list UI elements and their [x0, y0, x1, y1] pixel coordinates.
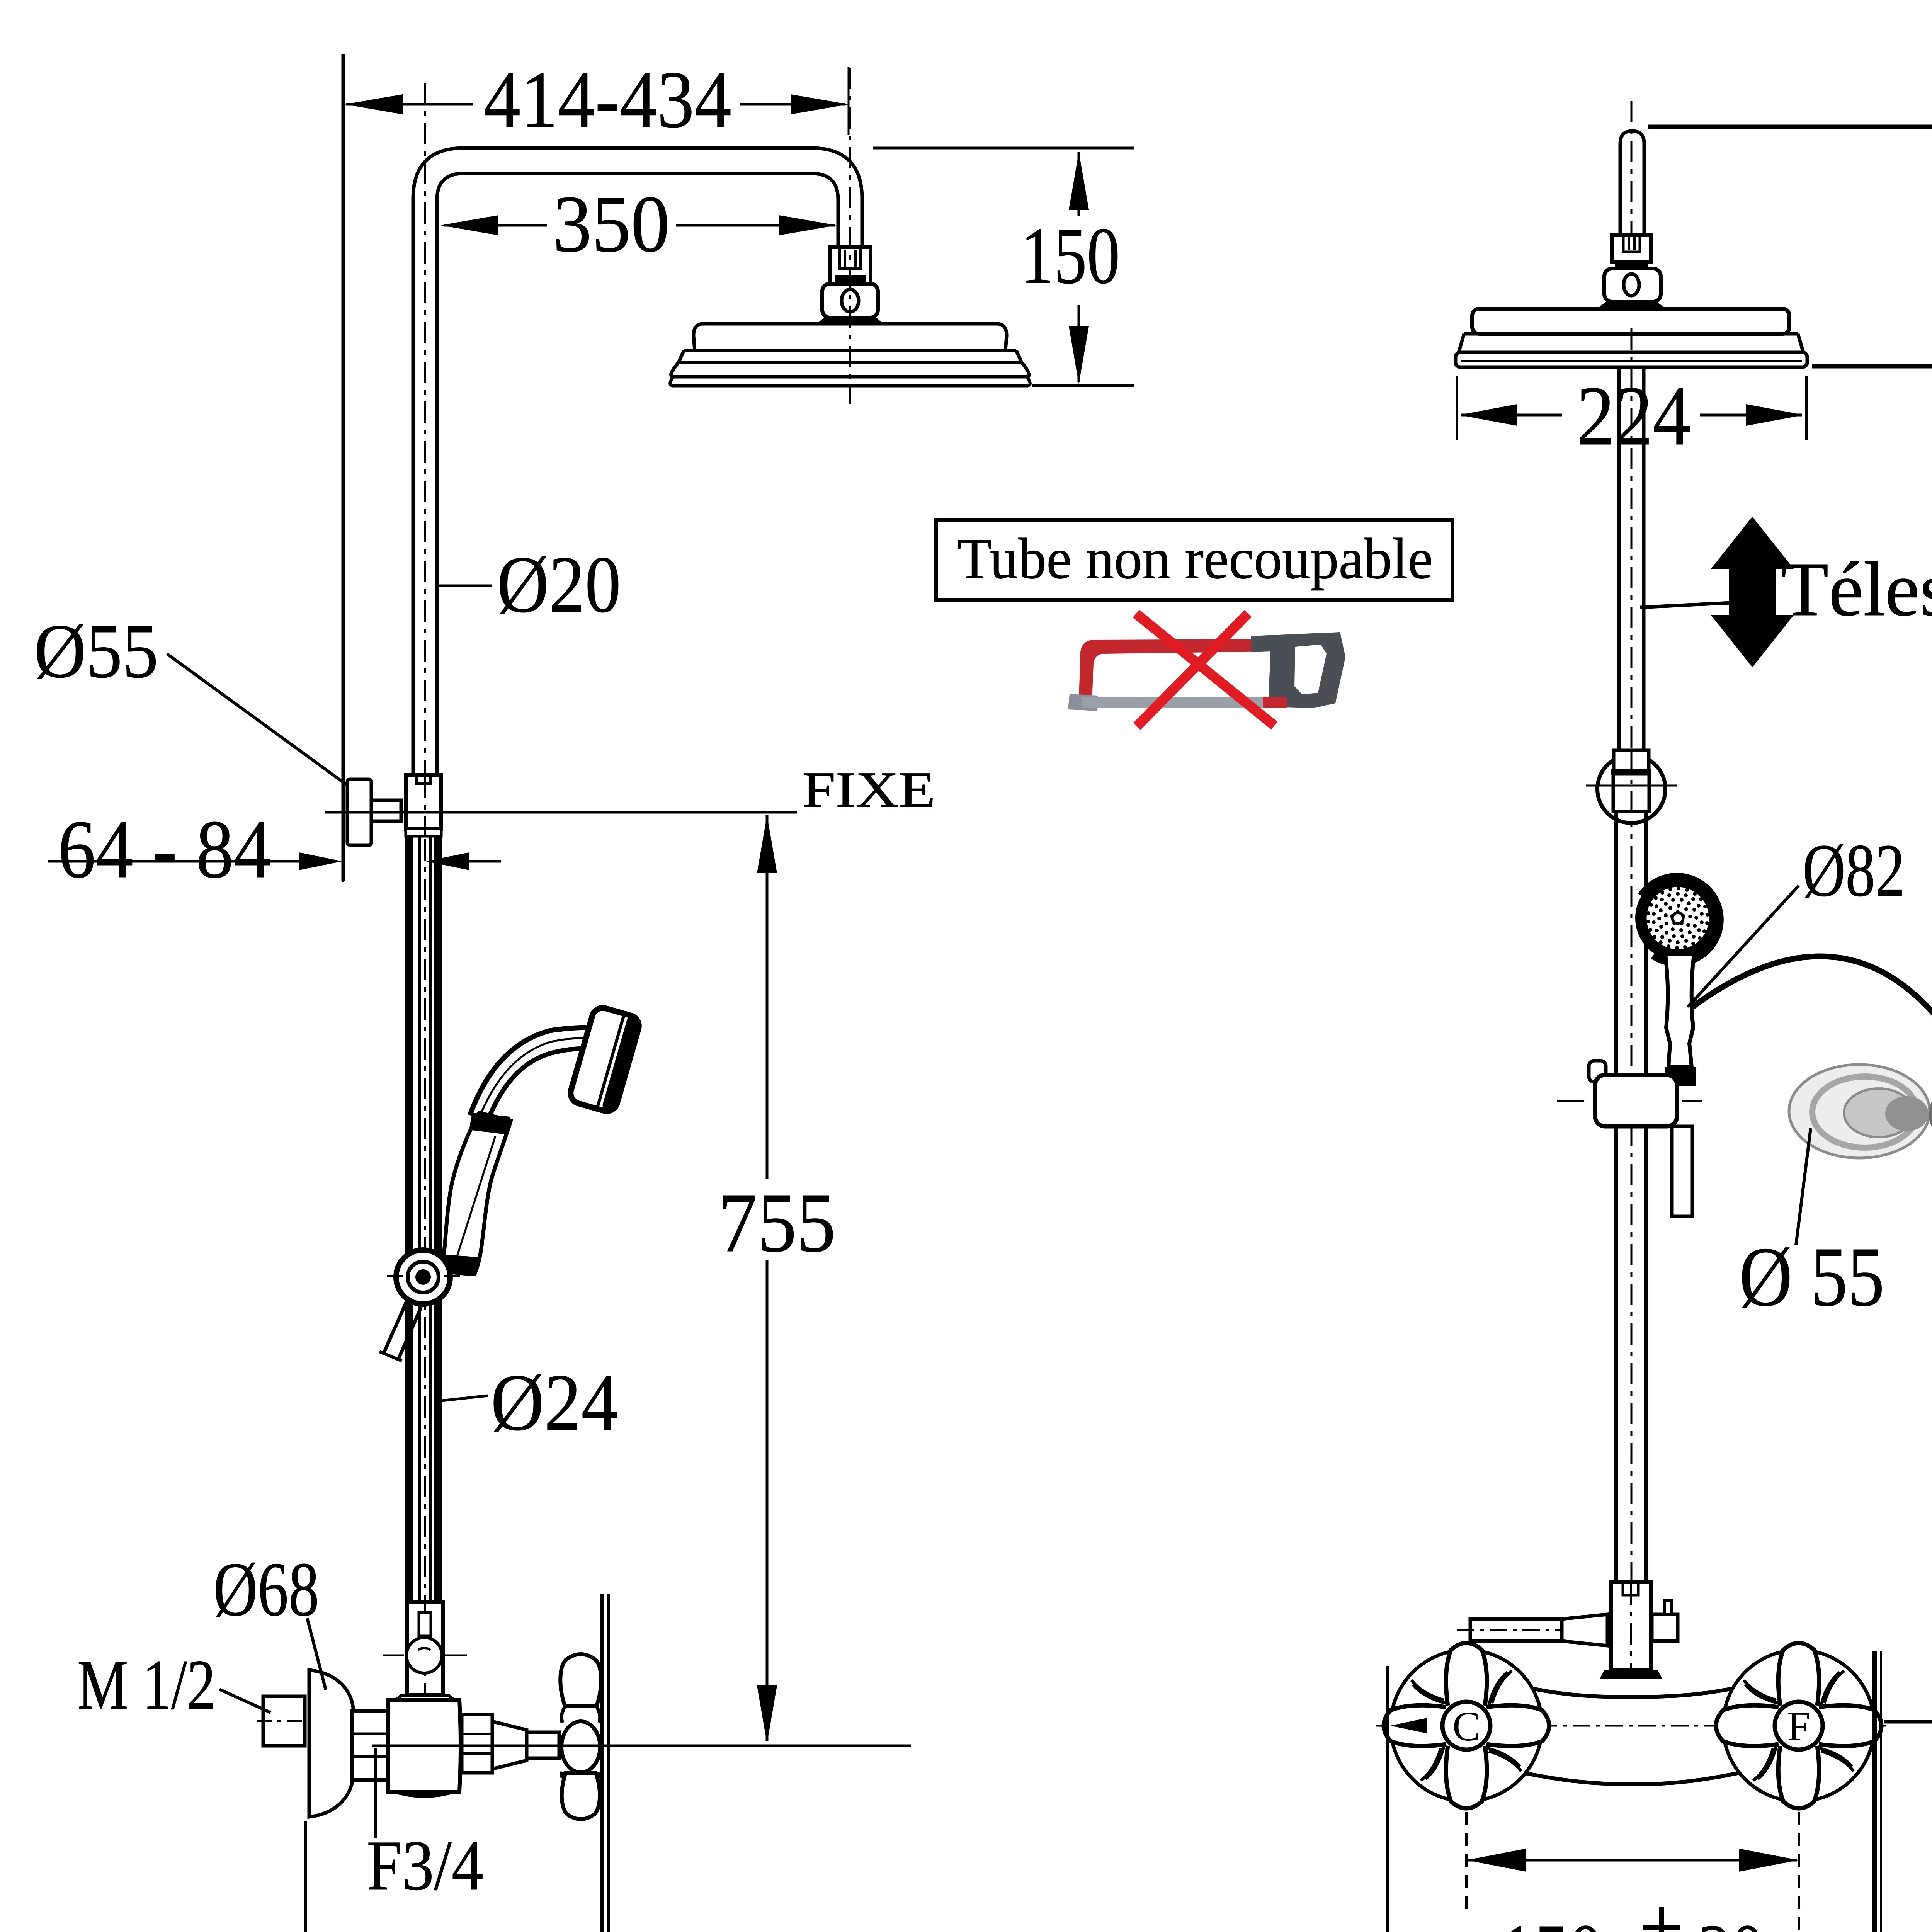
- svg-text:Tube non recoupable: Tube non recoupable: [957, 527, 1433, 591]
- svg-text:Ø82: Ø82: [1803, 829, 1905, 912]
- svg-text:150: 150: [1500, 1906, 1603, 1932]
- svg-text:20: 20: [1698, 1906, 1764, 1932]
- svg-text:224: 224: [1577, 369, 1691, 463]
- svg-text:M 1/2: M 1/2: [77, 1645, 216, 1725]
- svg-text:Télescopique: Télescopique: [1781, 547, 1932, 632]
- svg-text:FIXE: FIXE: [802, 761, 935, 818]
- svg-text:64 - 84: 64 - 84: [58, 803, 271, 895]
- svg-text:Ø24: Ø24: [491, 1358, 618, 1447]
- svg-text:Ø 55: Ø 55: [1739, 1230, 1884, 1324]
- svg-text:F3/4: F3/4: [367, 1826, 483, 1905]
- svg-text:150: 150: [1021, 211, 1120, 301]
- svg-text:Ø20: Ø20: [497, 540, 621, 629]
- svg-text:Ø55: Ø55: [34, 609, 158, 694]
- svg-text:F: F: [1787, 1704, 1810, 1750]
- svg-text:350: 350: [553, 179, 670, 269]
- svg-text:C: C: [1452, 1704, 1480, 1750]
- svg-text:755: 755: [718, 1175, 836, 1270]
- svg-text:414-434: 414-434: [483, 55, 731, 145]
- svg-text:Ø68: Ø68: [213, 1547, 319, 1632]
